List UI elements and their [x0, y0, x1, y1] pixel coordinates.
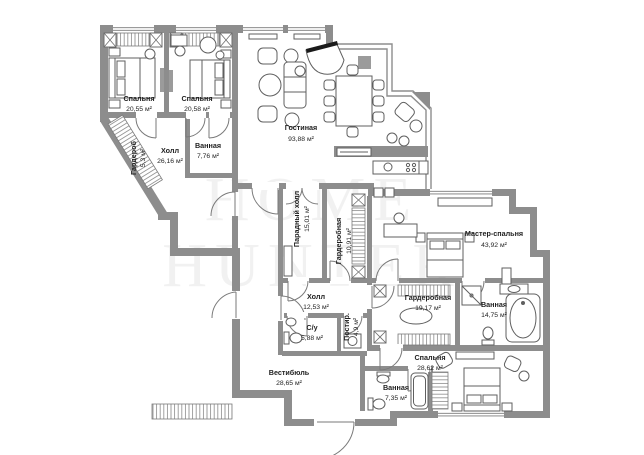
console-icon [284, 246, 292, 276]
room-label-bathroom-2: Ванная 14,75 м² [481, 300, 508, 319]
room-label-living-room: Гостиная 93,88 м² [285, 123, 317, 143]
svg-text:5,3 м²: 5,3 м² [140, 148, 147, 167]
svg-text:С/у: С/у [306, 323, 317, 332]
appliance-icon [374, 188, 383, 197]
side-table-icon [410, 120, 422, 132]
svg-text:Ванная: Ванная [383, 383, 409, 392]
bathtub-icon [506, 294, 540, 342]
svg-text:Ванная: Ванная [481, 300, 507, 309]
window [438, 411, 504, 418]
svg-text:Мастер-спальня: Мастер-спальня [465, 229, 523, 238]
nightstand-icon [221, 100, 231, 108]
svg-text:10,91 м²: 10,91 м² [346, 227, 353, 254]
armchair-icon [200, 37, 216, 53]
svg-text:Гардеробная: Гардеробная [334, 218, 343, 265]
stool-icon [399, 136, 409, 146]
fridge-icon [419, 161, 428, 174]
armchair-icon [258, 106, 277, 122]
window-bench-icon [438, 198, 492, 206]
room-label-bedroom-2: Спальня 20,58 м² [181, 94, 212, 113]
nightstand-icon [452, 403, 462, 411]
tv-icon [169, 70, 173, 92]
column [374, 285, 386, 297]
tv-icon [160, 68, 164, 92]
svg-text:Вестибюль: Вестибюль [269, 368, 310, 377]
svg-text:Парадный холл: Парадный холл [292, 190, 301, 247]
svg-text:Ванная: Ванная [195, 141, 221, 150]
coffee-table-icon [259, 74, 281, 96]
wardrobe-hatch [432, 372, 448, 409]
side-table-icon [519, 371, 529, 381]
side-table-icon [358, 56, 371, 69]
room-label-bathroom-1: Ванная 7,76 м² [195, 141, 221, 160]
column [220, 33, 232, 47]
bed-icon [190, 60, 230, 98]
svg-text:28,62 м²: 28,62 м² [417, 365, 444, 372]
window [243, 25, 283, 39]
column [104, 33, 116, 47]
toilet-icon [284, 332, 302, 344]
entry-steps [152, 404, 232, 419]
armchair-icon [258, 48, 277, 64]
room-label-bathroom-3: Ванная 7,35 м² [383, 383, 409, 402]
svg-text:Гардеробная: Гардеробная [405, 293, 452, 302]
grand-piano-icon [295, 41, 344, 76]
svg-text:19,17 м²: 19,17 м² [415, 305, 442, 312]
appliance-icon [385, 188, 394, 197]
svg-text:Холл: Холл [307, 292, 325, 301]
svg-text:Постир.: Постир. [342, 313, 351, 341]
svg-text:Спальня: Спальня [123, 94, 154, 103]
svg-text:Холл: Холл [161, 146, 179, 155]
side-table-icon [284, 49, 298, 63]
pouf-icon [216, 51, 224, 59]
bed-icon [109, 58, 155, 98]
column [374, 331, 386, 343]
bed-icon [427, 233, 463, 277]
kitchen-counter-icon [373, 161, 428, 174]
room-label-wc: С/у 5,88 м² [301, 323, 324, 342]
wardrobe-hatch [398, 334, 450, 345]
sink-icon [377, 372, 390, 383]
bay-corner [412, 92, 430, 110]
toilet-icon [368, 398, 385, 410]
svg-text:Гостиная: Гостиная [285, 123, 317, 132]
svg-text:93,88 м²: 93,88 м² [288, 136, 315, 143]
dresser-icon [384, 224, 417, 237]
dining-table-icon [324, 65, 384, 137]
svg-text:43,92 м²: 43,92 м² [481, 242, 508, 249]
bed-icon [464, 368, 500, 411]
room-label-bedroom-1: Спальня 20,55 м² [123, 94, 154, 113]
svg-text:15,01 м²: 15,01 м² [304, 205, 311, 232]
console-icon [456, 352, 494, 359]
svg-text:Гардероб: Гардероб [129, 140, 138, 175]
tv-wall [334, 146, 428, 157]
desk-icon [171, 35, 187, 46]
nightstand-icon [502, 403, 512, 411]
svg-text:20,55 м²: 20,55 м² [126, 106, 153, 113]
svg-text:26,16 м²: 26,16 м² [157, 158, 184, 165]
column [150, 33, 162, 47]
bathtub-icon [411, 373, 428, 409]
nightstand-icon [109, 100, 120, 108]
room-label-vestibule: Вестибюль 28,65 м² [269, 368, 310, 387]
svg-text:Спальня: Спальня [414, 353, 445, 362]
svg-text:14,75 м²: 14,75 м² [481, 312, 508, 319]
svg-text:7,35 м²: 7,35 м² [385, 395, 408, 402]
floor-plan: HOME HUNTER [0, 0, 644, 455]
svg-text:7,76 м²: 7,76 м² [197, 153, 220, 160]
armchair-icon [503, 355, 522, 373]
armchair-icon [393, 101, 416, 123]
sink-icon [286, 318, 296, 326]
chair-icon [175, 46, 185, 56]
wardrobe-hatch [117, 33, 149, 46]
svg-text:Спальня: Спальня [181, 94, 212, 103]
svg-text:12,53 м²: 12,53 м² [303, 304, 330, 311]
shower-icon [462, 286, 481, 305]
sink-icon [500, 284, 528, 294]
nightstand-icon [109, 48, 120, 56]
toilet-icon [482, 327, 494, 345]
svg-text:4,9 м²: 4,9 м² [353, 317, 360, 336]
stool-icon [387, 133, 397, 143]
svg-text:20,58 м²: 20,58 м² [184, 106, 211, 113]
wardrobe-hatch [352, 208, 365, 264]
stool-icon [145, 49, 155, 59]
svg-text:5,88 м²: 5,88 м² [301, 335, 324, 342]
floor-plan-canvas: HOME HUNTER [0, 0, 644, 455]
svg-text:28,65 м²: 28,65 м² [276, 380, 303, 387]
stool-icon [394, 213, 404, 223]
window [430, 189, 492, 196]
window [288, 25, 325, 39]
column [352, 194, 365, 206]
room-label-hall: Холл 26,16 м² [157, 146, 184, 165]
column [352, 266, 365, 278]
